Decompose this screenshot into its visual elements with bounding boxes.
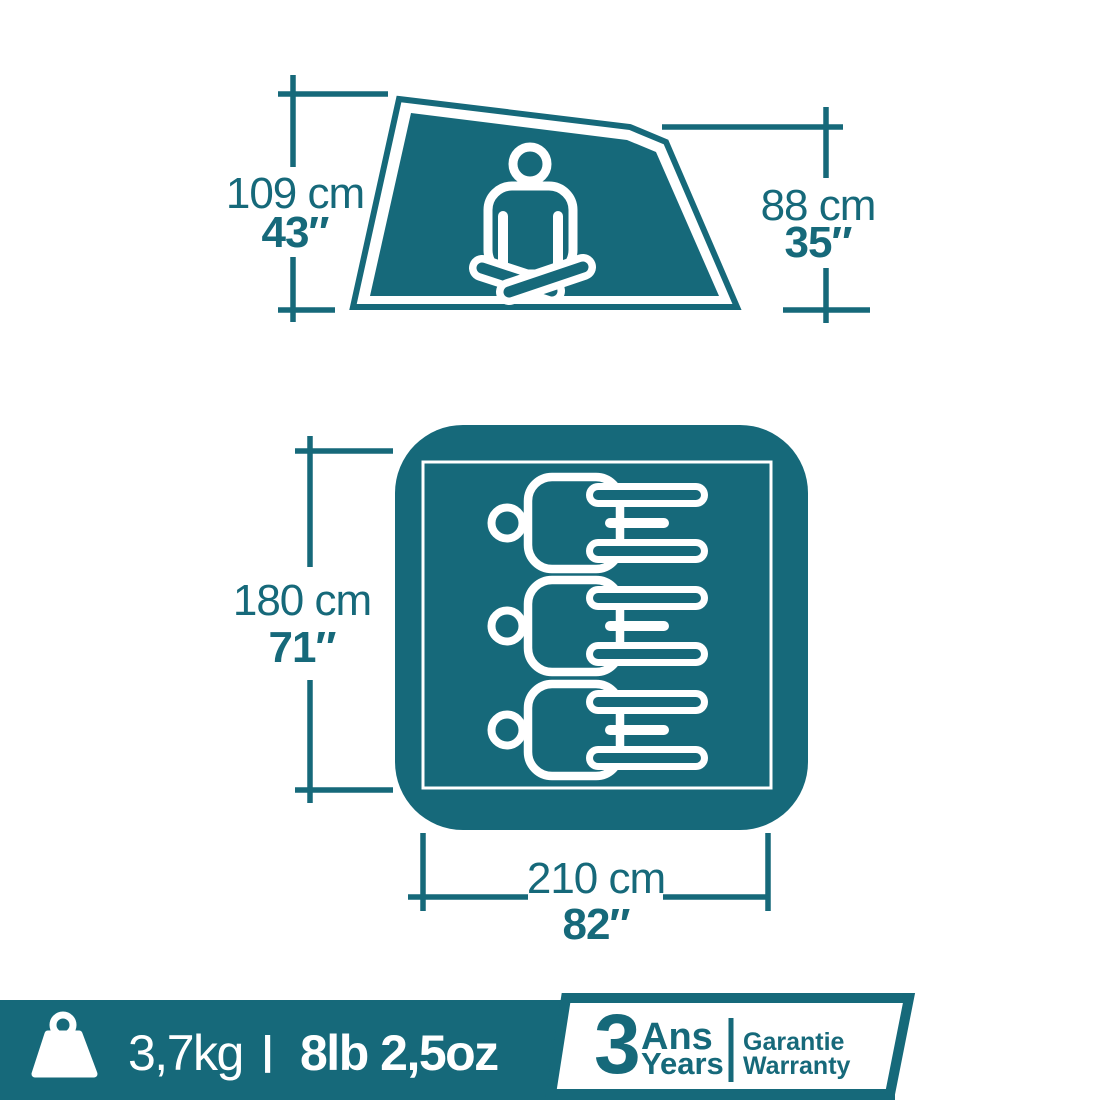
warranty-guarantee-en: Warranty [743, 1054, 850, 1079]
floor-length-metric-label: 210 cm [476, 857, 716, 901]
floor-length-imperial-label: 82″ [476, 903, 716, 947]
weight-separator: | [262, 1031, 273, 1071]
seated-person-head [513, 147, 547, 181]
weight-metric-label: 3,7kg [128, 1028, 243, 1078]
floor-width-metric-label: 180 cm [182, 579, 422, 623]
warranty-years-label-en: Years [641, 1048, 724, 1079]
rear-height-imperial-label: 35″ [698, 221, 938, 265]
warranty-years-number: 3 [594, 1002, 641, 1086]
weight-imperial-label: 8lb 2,5oz [300, 1028, 498, 1078]
floor-width-imperial-label: 71″ [182, 626, 422, 670]
peak-height-imperial-label: 43″ [175, 211, 415, 255]
lying-person-icons [492, 477, 697, 776]
tent-spec-infographic: 109 cm 43″ 88 cm 35″ 180 cm 71″ 210 cm 8… [0, 0, 1100, 1100]
